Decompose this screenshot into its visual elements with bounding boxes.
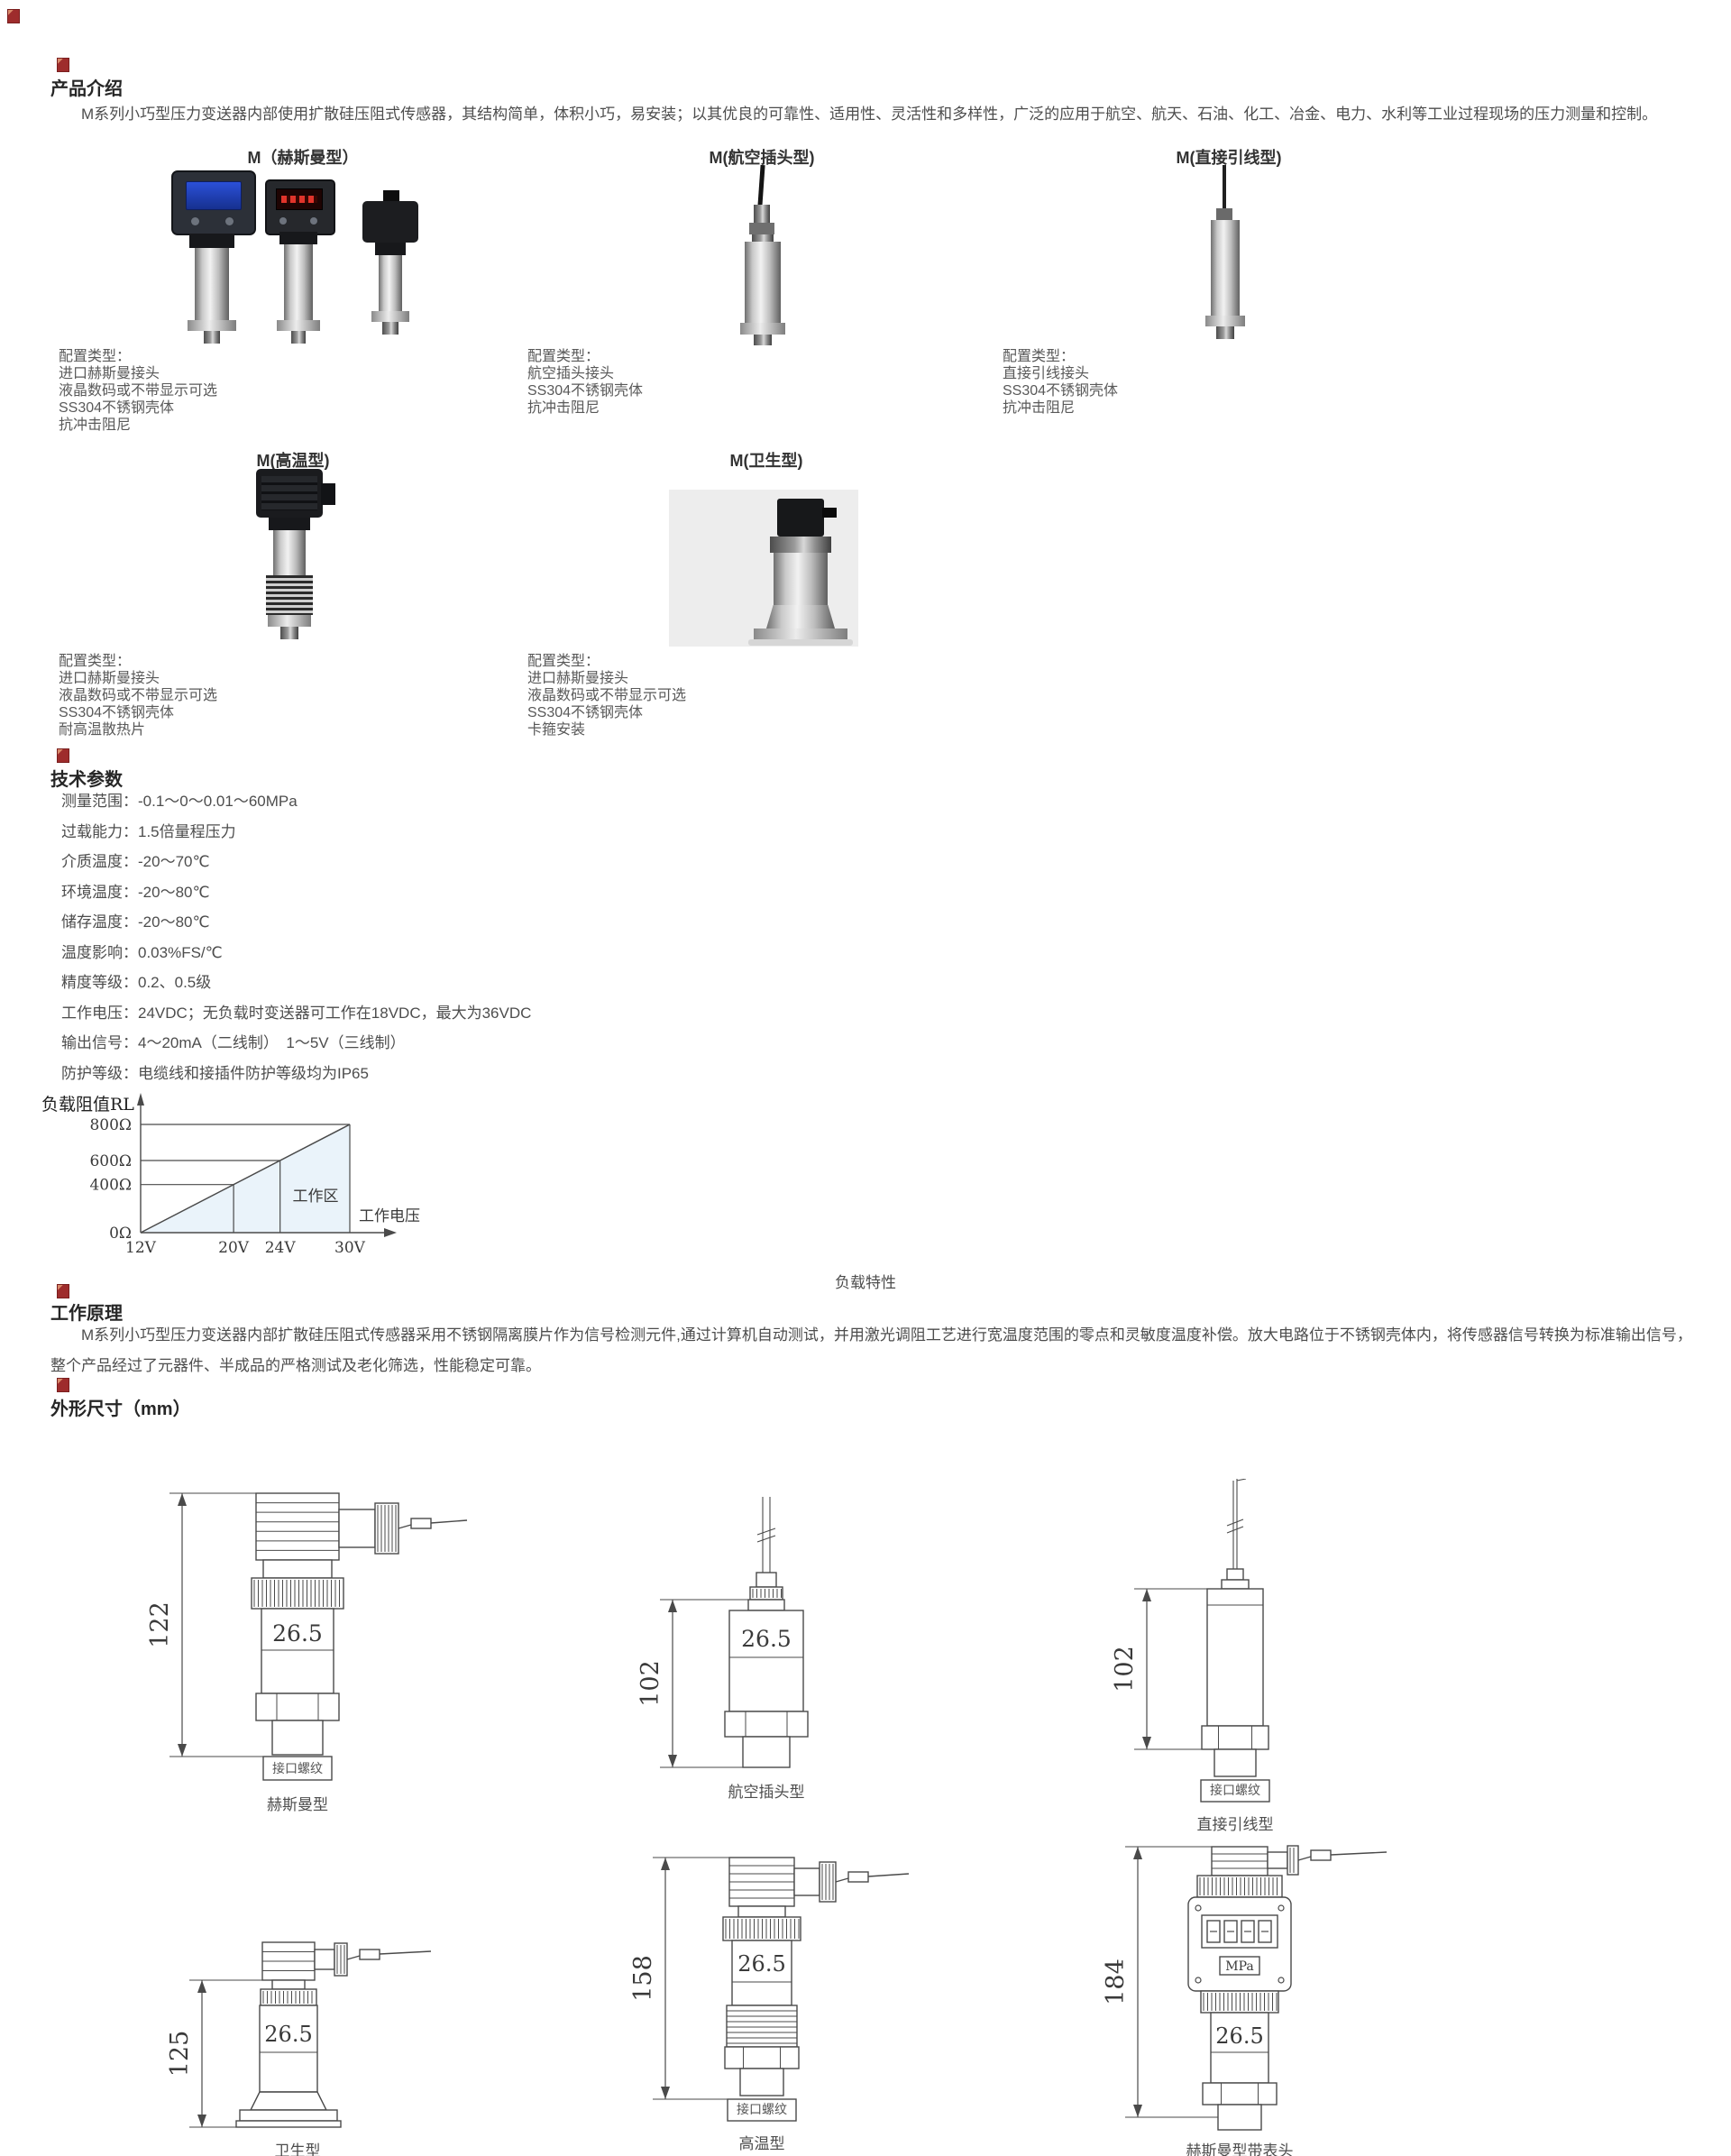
svg-text:26.5: 26.5 bbox=[264, 2022, 312, 2047]
text-line: 抗冲击阻尼 bbox=[1003, 399, 1118, 417]
config-list-sanitary: 配置类型：进口赫斯曼接头液晶数码或不带显示可选SS304不锈钢壳体卡箍安装 bbox=[527, 653, 686, 739]
tri-clamp-flange bbox=[754, 628, 847, 639]
hex-nut bbox=[188, 320, 236, 331]
drawing-sanitary: 26.5125 卫生型 bbox=[153, 1939, 442, 2156]
product-photo-hightemp bbox=[240, 467, 341, 647]
led-screen bbox=[276, 188, 323, 210]
knurl-ring bbox=[279, 232, 317, 244]
svg-text:接口螺纹: 接口螺纹 bbox=[737, 2102, 787, 2116]
drawing-caption: 直接引线型 bbox=[1091, 1812, 1379, 1834]
knurl-ring bbox=[375, 243, 406, 255]
svg-text:184: 184 bbox=[1102, 1959, 1130, 2005]
product-photo-aviation bbox=[721, 165, 804, 345]
text-line: 进口赫斯曼接头 bbox=[527, 670, 686, 687]
thread-stub bbox=[754, 335, 772, 345]
cable bbox=[1223, 165, 1226, 210]
button-icon bbox=[225, 217, 234, 225]
text-line: SS304不锈钢壳体 bbox=[59, 399, 217, 417]
hex-nut bbox=[371, 311, 409, 322]
broken-image-icon bbox=[57, 58, 69, 72]
text-line: 配置类型： bbox=[527, 348, 643, 365]
tech-params-list: 测量范围：-0.1～0～0.01～60MPa过载能力：1.5倍量程压力介质温度：… bbox=[61, 786, 531, 1088]
text-line: 抗冲击阻尼 bbox=[527, 399, 643, 417]
button-icon bbox=[310, 217, 317, 225]
din-connector bbox=[362, 201, 418, 243]
connector-ridges bbox=[261, 476, 317, 510]
product-photo-wire bbox=[1192, 165, 1259, 345]
svg-text:122: 122 bbox=[146, 1601, 174, 1648]
chart-title: 负载特性 bbox=[0, 1270, 1731, 1292]
steel-body bbox=[284, 244, 313, 320]
text-line: 液晶数码或不带显示可选 bbox=[59, 382, 217, 399]
product-photo-hirschmann-group bbox=[171, 165, 428, 345]
drawing-aviation: 26.5102 航空插头型 bbox=[622, 1497, 911, 1802]
text-line: 配置类型： bbox=[59, 348, 217, 365]
text-line: 环境温度：-20～80℃ bbox=[61, 877, 531, 908]
svg-text:26.5: 26.5 bbox=[737, 1951, 785, 1977]
principle-paragraph: M系列小巧型压力变送器内部扩散硅压阻式传感器采用不锈钢隔离膜片作为信号检测元件,… bbox=[50, 1320, 1700, 1381]
hex-nut bbox=[740, 323, 785, 335]
text-line: 温度影响：0.03%FS/℃ bbox=[61, 938, 531, 968]
din-connector bbox=[256, 469, 323, 518]
section-heading-intro: 产品介绍 bbox=[50, 74, 123, 100]
thread-stub bbox=[382, 322, 398, 335]
text-line: SS304不锈钢壳体 bbox=[1003, 382, 1118, 399]
drawing-caption: 赫斯曼型带表头 bbox=[1091, 2138, 1388, 2156]
load-characteristic-chart: 400Ω600Ω800Ω0Ω12V20V24V30V工作区工作电压 bbox=[36, 1089, 451, 1262]
dimension-drawing-wire-icon: 接口螺纹102 bbox=[1091, 1479, 1379, 1805]
drawing-hirschmann: 26.5接口螺纹122 赫斯曼型 bbox=[126, 1486, 469, 1814]
product-page: 产品介绍 M系列小巧型压力变送器内部使用扩散硅压阻式传感器，其结构简单，体积小巧… bbox=[0, 0, 1731, 2156]
cone bbox=[766, 605, 835, 628]
svg-text:158: 158 bbox=[629, 1955, 657, 2002]
cable-gland bbox=[1216, 208, 1232, 220]
svg-text:800Ω: 800Ω bbox=[89, 1116, 132, 1134]
button-icon bbox=[279, 217, 287, 225]
text-line: 进口赫斯曼接头 bbox=[59, 365, 217, 382]
text-line: 输出信号：4～20mA（二线制） 1～5V（三线制） bbox=[61, 1028, 531, 1059]
svg-text:30V: 30V bbox=[334, 1239, 366, 1257]
neck bbox=[770, 537, 831, 553]
config-list-aviation: 配置类型：航空插头接头SS304不锈钢壳体抗冲击阻尼 bbox=[527, 348, 643, 417]
svg-text:接口螺纹: 接口螺纹 bbox=[272, 1761, 323, 1775]
text-line: 配置类型： bbox=[527, 653, 686, 670]
dimension-drawing-hightemp-icon: 26.5接口螺纹158 bbox=[613, 1854, 911, 2124]
svg-text:工作电压: 工作电压 bbox=[359, 1207, 420, 1225]
text-line: 测量范围：-0.1～0～0.01～60MPa bbox=[61, 786, 531, 817]
text-line: SS304不锈钢壳体 bbox=[527, 704, 686, 721]
steel-body bbox=[273, 530, 306, 575]
svg-text:26.5: 26.5 bbox=[741, 1626, 792, 1652]
svg-text:26.5: 26.5 bbox=[1215, 2023, 1263, 2049]
svg-text:400Ω: 400Ω bbox=[89, 1177, 132, 1195]
text-line: 精度等级：0.2、0.5级 bbox=[61, 968, 531, 998]
lcd-screen bbox=[186, 181, 242, 210]
text-line: 工作电压：24VDC；无负载时变送器可工作在18VDC，最大为36VDC bbox=[61, 998, 531, 1029]
dimension-drawing-hirschmann-icon: 26.5接口螺纹122 bbox=[126, 1486, 469, 1785]
steel-body bbox=[379, 255, 402, 311]
text-line: 液晶数码或不带显示可选 bbox=[527, 687, 686, 704]
text-line: 配置类型： bbox=[1003, 348, 1118, 365]
connector-arm bbox=[321, 483, 335, 505]
drawing-wire: 接口螺纹102 直接引线型 bbox=[1091, 1479, 1379, 1834]
model-label-sanitary: M(卫生型) bbox=[676, 448, 856, 472]
text-line: 进口赫斯曼接头 bbox=[59, 670, 217, 687]
thread-stub bbox=[280, 627, 298, 639]
text-line: SS304不锈钢壳体 bbox=[59, 704, 217, 721]
drawing-display: MPa26.5184 赫斯曼型带表头 bbox=[1091, 1845, 1388, 2156]
thread-stub bbox=[1216, 326, 1234, 339]
svg-text:600Ω: 600Ω bbox=[89, 1152, 132, 1170]
tri-clamp-disc bbox=[748, 639, 853, 646]
svg-text:102: 102 bbox=[1111, 1646, 1139, 1693]
lcd-head bbox=[171, 170, 256, 235]
din-plug-top bbox=[383, 190, 399, 201]
drawing-hightemp: 26.5接口螺纹158 高温型 bbox=[613, 1854, 911, 2153]
svg-text:MPa: MPa bbox=[1225, 1959, 1253, 1974]
section-heading-dimensions: 外形尺寸（mm） bbox=[50, 1394, 191, 1420]
config-list-hirschmann: 配置类型：进口赫斯曼接头液晶数码或不带显示可选SS304不锈钢壳体抗冲击阻尼 bbox=[59, 348, 217, 434]
led-digits bbox=[281, 196, 317, 203]
text-line: 液晶数码或不带显示可选 bbox=[59, 687, 217, 704]
steel-body bbox=[745, 242, 781, 323]
config-list-hightemp: 配置类型：进口赫斯曼接头液晶数码或不带显示可选SS304不锈钢壳体耐高温散热片 bbox=[59, 653, 217, 739]
steel-body bbox=[1211, 220, 1240, 316]
svg-text:24V: 24V bbox=[265, 1239, 297, 1257]
text-line: 卡箍安装 bbox=[527, 721, 686, 739]
svg-text:102: 102 bbox=[637, 1660, 664, 1707]
coupling bbox=[749, 223, 774, 234]
drawing-caption: 航空插头型 bbox=[622, 1779, 911, 1802]
text-line: 储存温度：-20～80℃ bbox=[61, 907, 531, 938]
hex-nut bbox=[268, 615, 311, 627]
text-line: 抗冲击阻尼 bbox=[59, 417, 217, 434]
thread-stub bbox=[291, 331, 306, 344]
drawing-caption: 卫生型 bbox=[153, 2138, 442, 2156]
text-line: 航空插头接头 bbox=[527, 365, 643, 382]
text-line: 过载能力：1.5倍量程压力 bbox=[61, 817, 531, 848]
product-photo-sanitary bbox=[669, 490, 858, 647]
dimension-drawing-sanitary-icon: 26.5125 bbox=[153, 1939, 442, 2132]
drawing-caption: 高温型 bbox=[613, 2131, 911, 2153]
steel-body bbox=[774, 553, 828, 605]
svg-text:26.5: 26.5 bbox=[272, 1620, 323, 1647]
text-line: SS304不锈钢壳体 bbox=[527, 382, 643, 399]
config-list-wire: 配置类型：直接引线接头SS304不锈钢壳体抗冲击阻尼 bbox=[1003, 348, 1118, 417]
svg-text:工作区: 工作区 bbox=[293, 1188, 339, 1205]
cable bbox=[757, 165, 765, 206]
heat-sink bbox=[266, 575, 313, 615]
svg-text:20V: 20V bbox=[218, 1239, 250, 1257]
text-line: 防护等级：电缆线和接插件防护等级均为IP65 bbox=[61, 1059, 531, 1089]
hex-nut bbox=[1205, 316, 1245, 326]
svg-text:125: 125 bbox=[166, 2031, 194, 2078]
dimension-drawing-aviation-icon: 26.5102 bbox=[622, 1497, 911, 1773]
text-line: 配置类型： bbox=[59, 653, 217, 670]
broken-image-icon bbox=[7, 9, 20, 23]
svg-text:12V: 12V bbox=[125, 1239, 157, 1257]
text-line: 直接引线接头 bbox=[1003, 365, 1118, 382]
cable-gland bbox=[822, 508, 837, 518]
drawing-caption: 赫斯曼型 bbox=[126, 1792, 469, 1814]
din-connector bbox=[777, 499, 824, 537]
knurl-ring bbox=[269, 518, 310, 530]
hex-nut bbox=[277, 320, 320, 331]
broken-image-icon bbox=[57, 748, 69, 763]
led-head bbox=[265, 179, 335, 235]
dimension-drawing-display-icon: MPa26.5184 bbox=[1091, 1845, 1388, 2132]
knurl-ring bbox=[189, 234, 234, 248]
steel-body bbox=[195, 248, 229, 320]
button-icon bbox=[191, 217, 199, 225]
text-line: 介质温度：-20～70℃ bbox=[61, 847, 531, 877]
thread-stub bbox=[204, 331, 220, 344]
svg-text:接口螺纹: 接口螺纹 bbox=[1210, 1783, 1260, 1797]
intro-paragraph: M系列小巧型压力变送器内部使用扩散硅压阻式传感器，其结构简单，体积小巧，易安装；… bbox=[50, 99, 1709, 130]
cap bbox=[752, 234, 774, 242]
plug bbox=[754, 205, 770, 225]
text-line: 耐高温散热片 bbox=[59, 721, 217, 739]
